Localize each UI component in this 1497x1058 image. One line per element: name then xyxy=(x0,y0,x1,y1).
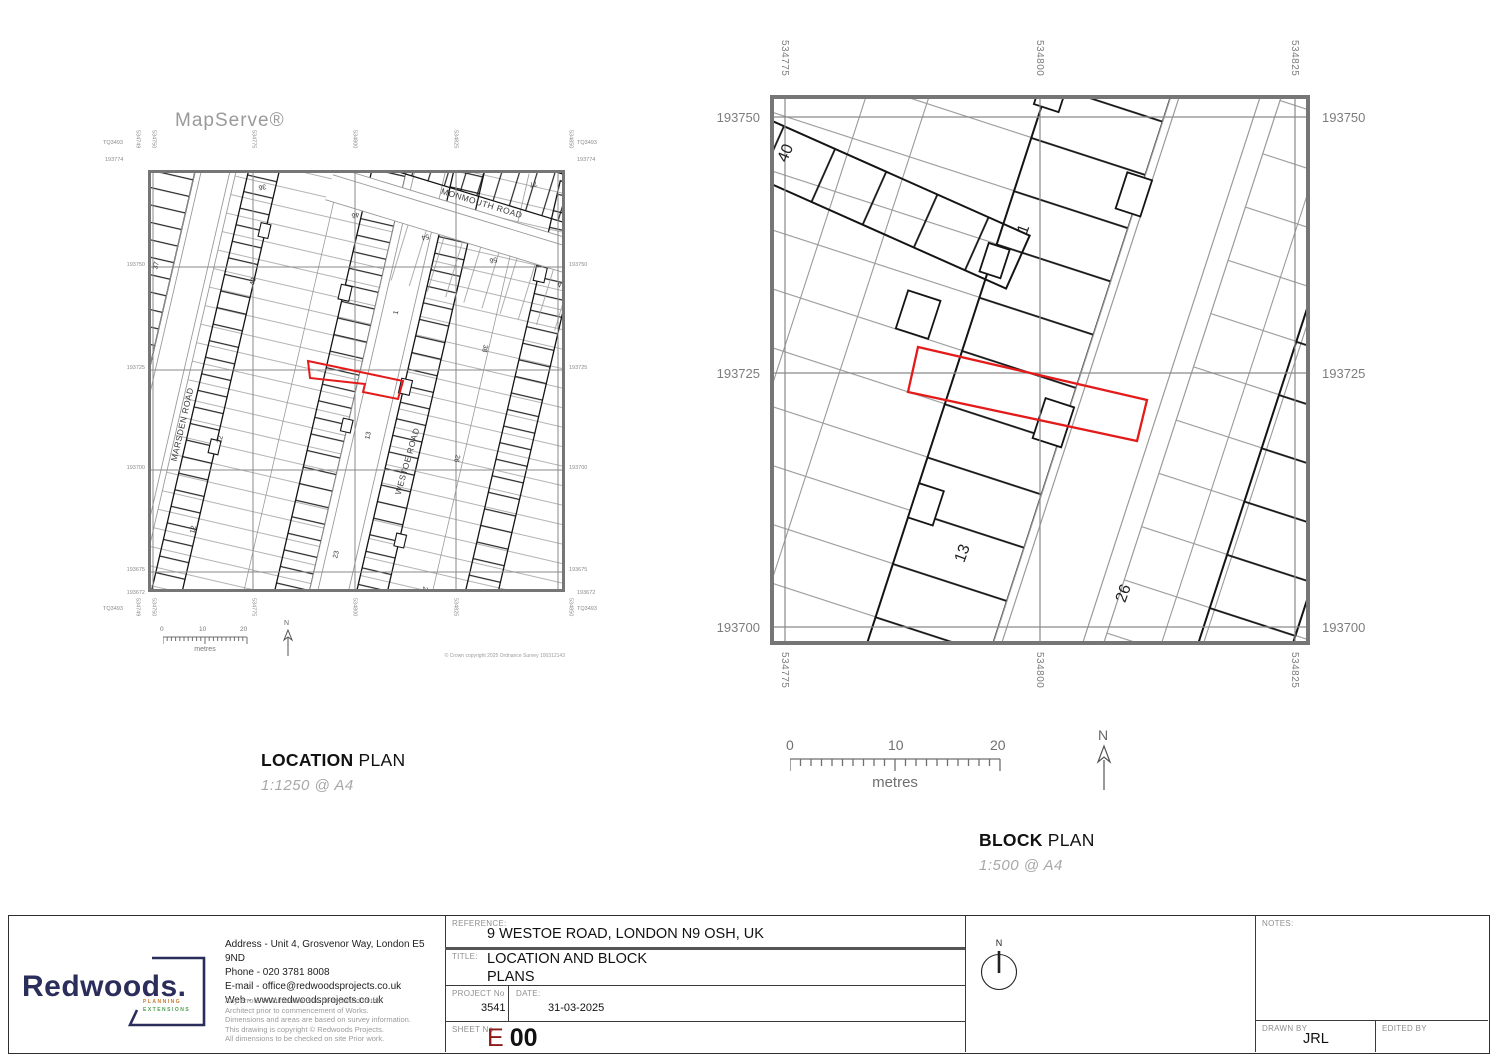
loc-copyright: © Crown copyright 2025 Ordnance Survey 1… xyxy=(400,653,565,659)
blk-scale-0: 0 xyxy=(786,737,794,753)
loc-northing-bot-r: 193672 xyxy=(577,591,595,597)
blk-scale-20: 20 xyxy=(990,737,1006,753)
disclaimer-line: Any errors on Dimensions to be reported … xyxy=(225,996,440,1006)
tb-divider-3 xyxy=(1255,915,1256,1052)
company-phone: Phone - 020 3781 8008 xyxy=(225,966,440,980)
loc-easting-edge-r-top: 534850 xyxy=(567,130,573,148)
loc-easting-edge-l-top: 534749 xyxy=(134,130,140,148)
blk-easting-top-2: 534825 xyxy=(1289,40,1299,76)
notes-label: NOTES: xyxy=(1262,919,1294,928)
blk-easting-bot-2: 534825 xyxy=(1289,652,1299,688)
loc-scale-20: 20 xyxy=(240,626,247,633)
loc-corner-ref-tl: TQ3493 xyxy=(103,141,123,147)
loc-easting-bot-1: 534775 xyxy=(250,598,256,616)
sheet-value: 00 xyxy=(510,1024,538,1052)
drawn-by-value: JRL xyxy=(1303,1031,1329,1047)
company-email: E-mail - office@redwoodsprojects.co.uk xyxy=(225,980,440,994)
loc-scale-unit: metres xyxy=(180,646,230,653)
loc-easting-top-1: 534775 xyxy=(250,130,256,148)
block-plan-scale-note: 1:500 @ A4 xyxy=(979,857,1063,874)
loc-easting-top-2: 534800 xyxy=(351,130,357,148)
titleblock-compass: N xyxy=(975,936,1025,992)
loc-northing-r-1: 193725 xyxy=(569,366,587,372)
loc-scale-0: 0 xyxy=(160,626,164,633)
block-caption-rest: PLAN xyxy=(1048,830,1095,850)
loc-northing-l-3: 193675 xyxy=(112,568,145,574)
location-plan-caption: LOCATIONPLAN xyxy=(261,750,405,771)
loc-north-arrow xyxy=(280,629,296,657)
blk-northing-l-1: 193725 xyxy=(698,367,760,380)
loc-easting-edge-r-bot: 534850 xyxy=(567,598,573,616)
loc-scale-ruler xyxy=(163,636,253,646)
mapserve-logo: MapServe® xyxy=(175,110,285,132)
loc-easting-top-0: 534750 xyxy=(150,130,156,148)
loc-northing-top-r: 193774 xyxy=(577,158,595,164)
disclaimer-line: Dimensions and areas are based on survey… xyxy=(225,1015,440,1025)
tb-divider-1 xyxy=(445,915,446,1052)
company-tagline-line2: EXTENSIONS xyxy=(143,1006,190,1014)
company-tagline-line1: PLANNING xyxy=(143,998,190,1006)
loc-corner-ref-br: TQ3493 xyxy=(577,607,597,613)
location-plan-map: MARSDEN ROAD WESTOE ROAD MONMOUTH ROAD 3… xyxy=(148,170,565,592)
sheet-number: E00 xyxy=(487,1024,538,1053)
drawing-sheet: { "location_plan": { "provider": "MapSer… xyxy=(0,0,1497,1058)
blk-scale-unit: metres xyxy=(855,774,935,791)
drawing-title-line1: LOCATION AND BLOCK xyxy=(487,951,647,967)
title-label: TITLE: xyxy=(452,952,478,961)
location-caption-rest: PLAN xyxy=(358,750,405,770)
tb-project-date-divider xyxy=(508,985,509,1021)
drawn-by-label: DRAWN BY xyxy=(1262,1024,1307,1033)
block-plan-map: 40 1 13 26 xyxy=(770,95,1310,645)
loc-easting-bot-2: 534800 xyxy=(351,598,357,616)
blk-scale-ruler xyxy=(790,758,1004,774)
loc-northing-r-2: 193700 xyxy=(569,466,587,472)
loc-easting-bot-0: 534750 xyxy=(150,598,156,616)
company-disclaimer: Any errors on Dimensions to be reported … xyxy=(225,996,440,1044)
company-address: Address - Unit 4, Grosvenor Way, London … xyxy=(225,938,440,966)
blk-north-label: N xyxy=(1098,727,1108,743)
location-plan-scale-note: 1:1250 @ A4 xyxy=(261,777,354,794)
company-tagline: PLANNING EXTENSIONS xyxy=(143,998,190,1014)
reference-value: 9 WESTOE ROAD, LONDON N9 OSH, UK xyxy=(487,926,764,942)
compass-north-label: N xyxy=(996,938,1003,948)
loc-northing-r-3: 193675 xyxy=(569,568,587,574)
loc-northing-l-1: 193725 xyxy=(112,366,145,372)
tb-divider-2 xyxy=(965,915,966,1052)
loc-north-label: N xyxy=(284,620,289,627)
edited-by-label: EDITED BY xyxy=(1382,1024,1427,1033)
loc-northing-r-0: 193750 xyxy=(569,263,587,269)
blk-scale-10: 10 xyxy=(888,737,904,753)
loc-corner-ref-tr: TQ3493 xyxy=(577,141,597,147)
blk-easting-bot-1: 534800 xyxy=(1034,652,1044,688)
loc-easting-bot-3: 534825 xyxy=(452,598,458,616)
loc-corner-ref-bl: TQ3493 xyxy=(103,607,123,613)
drawing-title-line2: PLANS xyxy=(487,969,535,985)
blk-northing-r-0: 193750 xyxy=(1322,111,1365,124)
disclaimer-line: All dimensions to be checked on site Pri… xyxy=(225,1034,440,1044)
blk-north-arrow xyxy=(1093,744,1115,792)
blk-northing-l-0: 193750 xyxy=(698,111,760,124)
blk-easting-top-0: 534775 xyxy=(779,40,789,76)
loc-easting-edge-l-bot: 534749 xyxy=(134,598,140,616)
tb-notes-separator xyxy=(1255,1020,1488,1021)
loc-northing-top-l: 193774 xyxy=(105,158,123,164)
date-value: 31-03-2025 xyxy=(548,1002,604,1014)
loc-easting-top-3: 534825 xyxy=(452,130,458,148)
disclaimer-line: This drawing is copyright © Redwoods Pro… xyxy=(225,1025,440,1035)
loc-northing-l-2: 193700 xyxy=(112,466,145,472)
tb-project-separator xyxy=(445,1021,965,1022)
loc-scale-10: 10 xyxy=(199,626,206,633)
block-caption-bold: BLOCK xyxy=(979,830,1043,850)
company-logo-bracket xyxy=(120,950,210,1032)
tb-title-separator xyxy=(445,985,965,986)
tb-ref-separator xyxy=(445,947,965,950)
location-caption-bold: LOCATION xyxy=(261,750,353,770)
loc-northing-bot-l: 193672 xyxy=(112,591,145,597)
blk-northing-r-2: 193700 xyxy=(1322,621,1365,634)
tb-drawn-edited-divider xyxy=(1375,1020,1376,1052)
blk-easting-top-1: 534800 xyxy=(1034,40,1044,76)
loc-northing-l-0: 193750 xyxy=(112,263,145,269)
blk-northing-l-2: 193700 xyxy=(698,621,760,634)
sheet-prefix: E xyxy=(487,1024,504,1052)
project-no-value: 3541 xyxy=(481,1002,505,1014)
block-plan-caption: BLOCKPLAN xyxy=(979,830,1095,851)
blk-northing-r-1: 193725 xyxy=(1322,367,1365,380)
blk-easting-bot-0: 534775 xyxy=(779,652,789,688)
disclaimer-line: Architect prior to commencement of Works… xyxy=(225,1006,440,1016)
project-no-label: PROJECT No xyxy=(452,989,505,998)
date-label: DATE: xyxy=(516,989,540,998)
